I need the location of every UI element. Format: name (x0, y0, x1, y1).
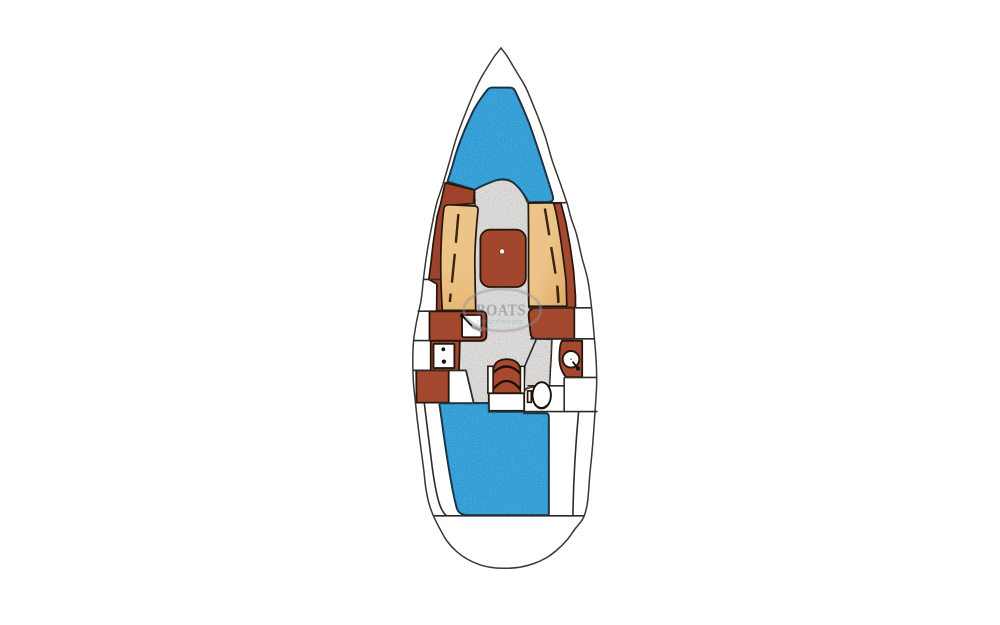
svg-text:BOATS: BOATS (476, 301, 526, 320)
svg-text:a division of boats group: a division of boats group (477, 319, 523, 326)
